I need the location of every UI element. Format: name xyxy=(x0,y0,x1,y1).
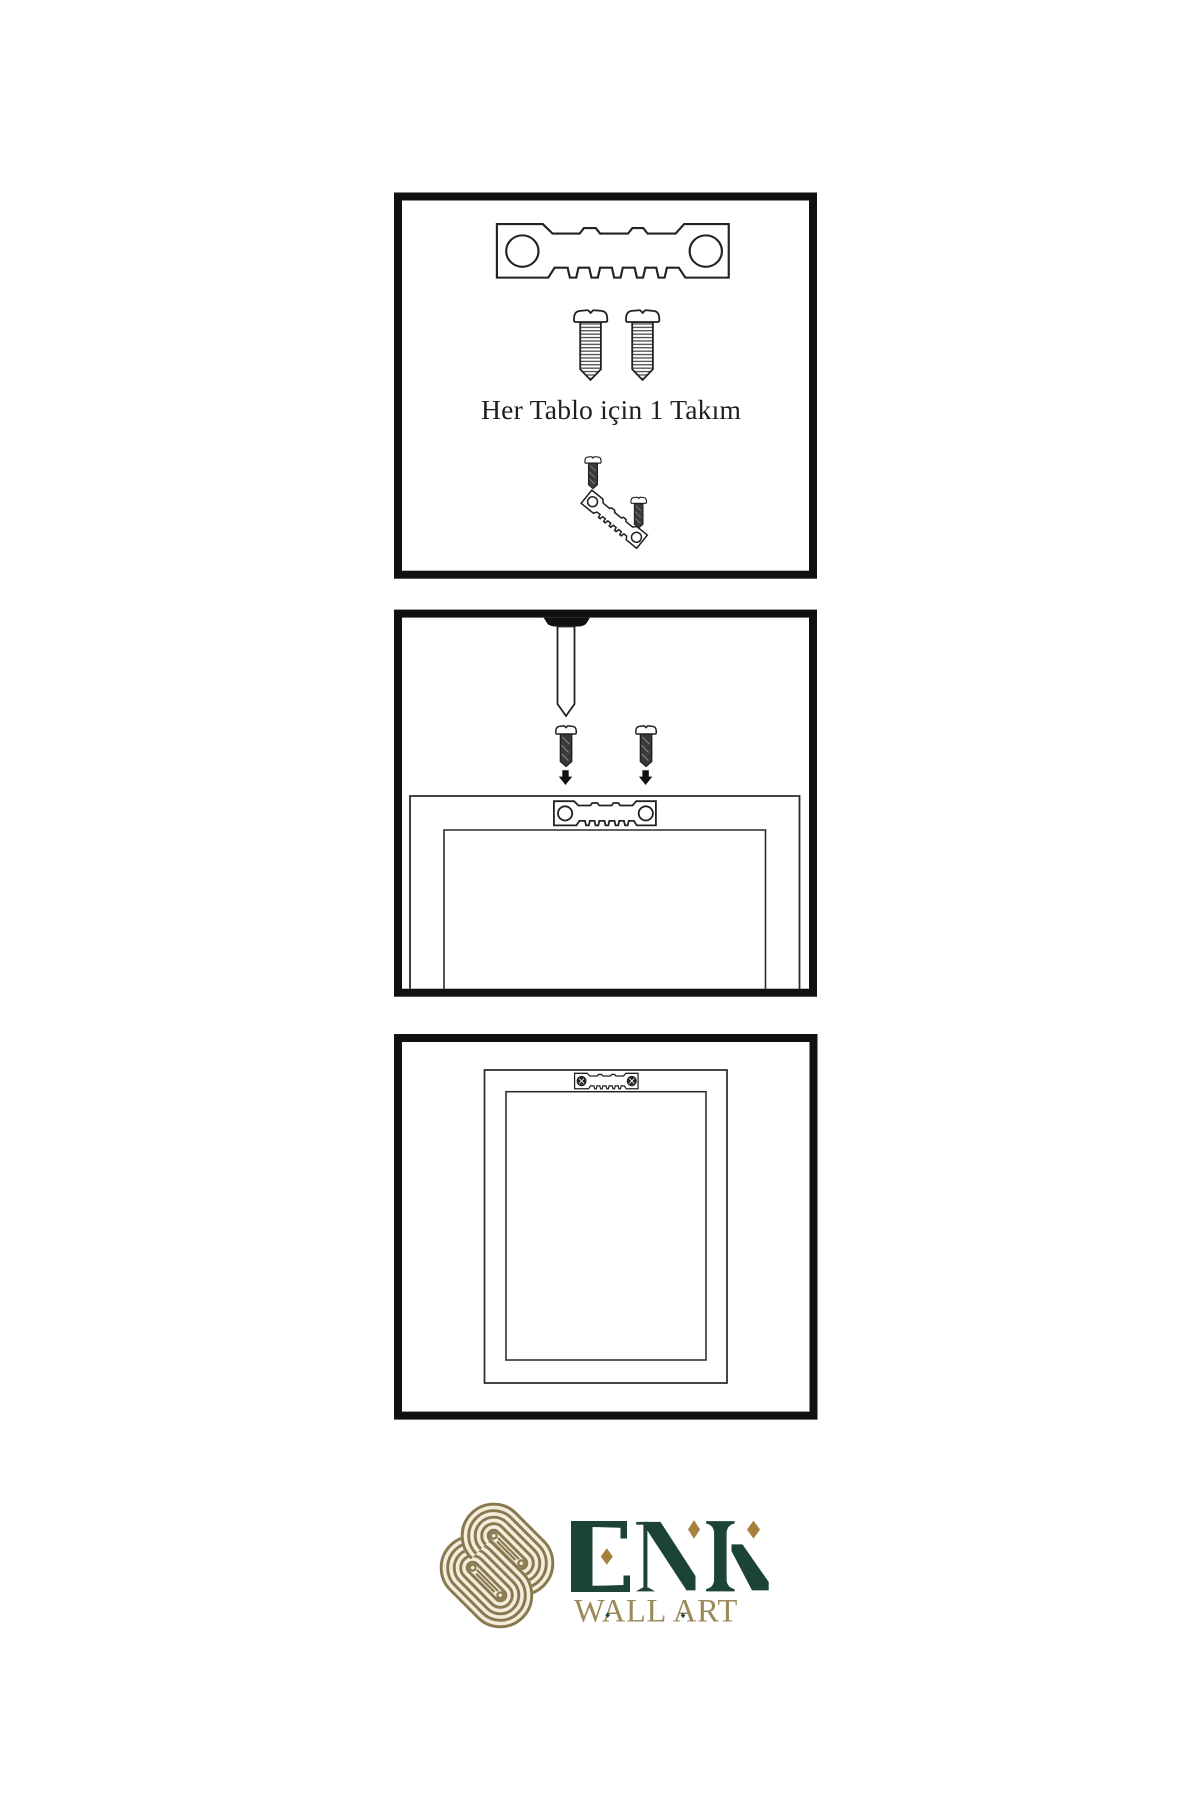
svg-text:WALL ART: WALL ART xyxy=(574,1594,738,1630)
svg-text:Her Tablo için 1 Takım: Her Tablo için 1 Takım xyxy=(481,394,742,425)
